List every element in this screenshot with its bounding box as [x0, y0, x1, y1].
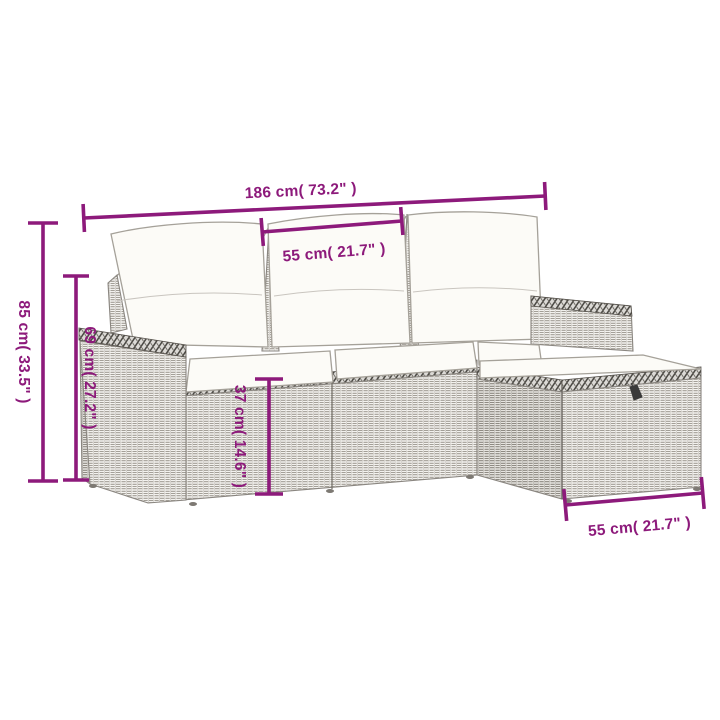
- product-dimension-image: 186 cm( 73.2" ) 55 cm( 21.7" ) 85 cm( 33…: [0, 0, 720, 720]
- dimension-overall-height: 85 cm( 33.5" ): [15, 223, 58, 481]
- dimension-label-back-height: 69 cm( 27.2" ): [81, 326, 98, 429]
- ottoman-left-face: [477, 379, 562, 499]
- dimension-label-seat-height: 37 cm( 14.6" ): [231, 385, 248, 488]
- right-armrest: [531, 296, 633, 351]
- rattan-sofa-set: [79, 212, 701, 506]
- back-cushion-1: [111, 222, 268, 347]
- sofa-dimension-diagram: 186 cm( 73.2" ) 55 cm( 21.7" ) 85 cm( 33…: [0, 0, 720, 720]
- dimension-label-ottoman-width: 55 cm( 21.7" ): [587, 514, 691, 540]
- dimension-label-overall-height: 85 cm( 33.5" ): [15, 300, 32, 403]
- ottoman: [477, 367, 701, 499]
- back-cushion-3: [408, 212, 542, 343]
- dimension-label-overall-width: 186 cm( 73.2" ): [244, 180, 357, 202]
- back-cushion-2: [268, 214, 410, 347]
- ottoman-front-face: [562, 378, 701, 499]
- back-cushions: [111, 212, 542, 347]
